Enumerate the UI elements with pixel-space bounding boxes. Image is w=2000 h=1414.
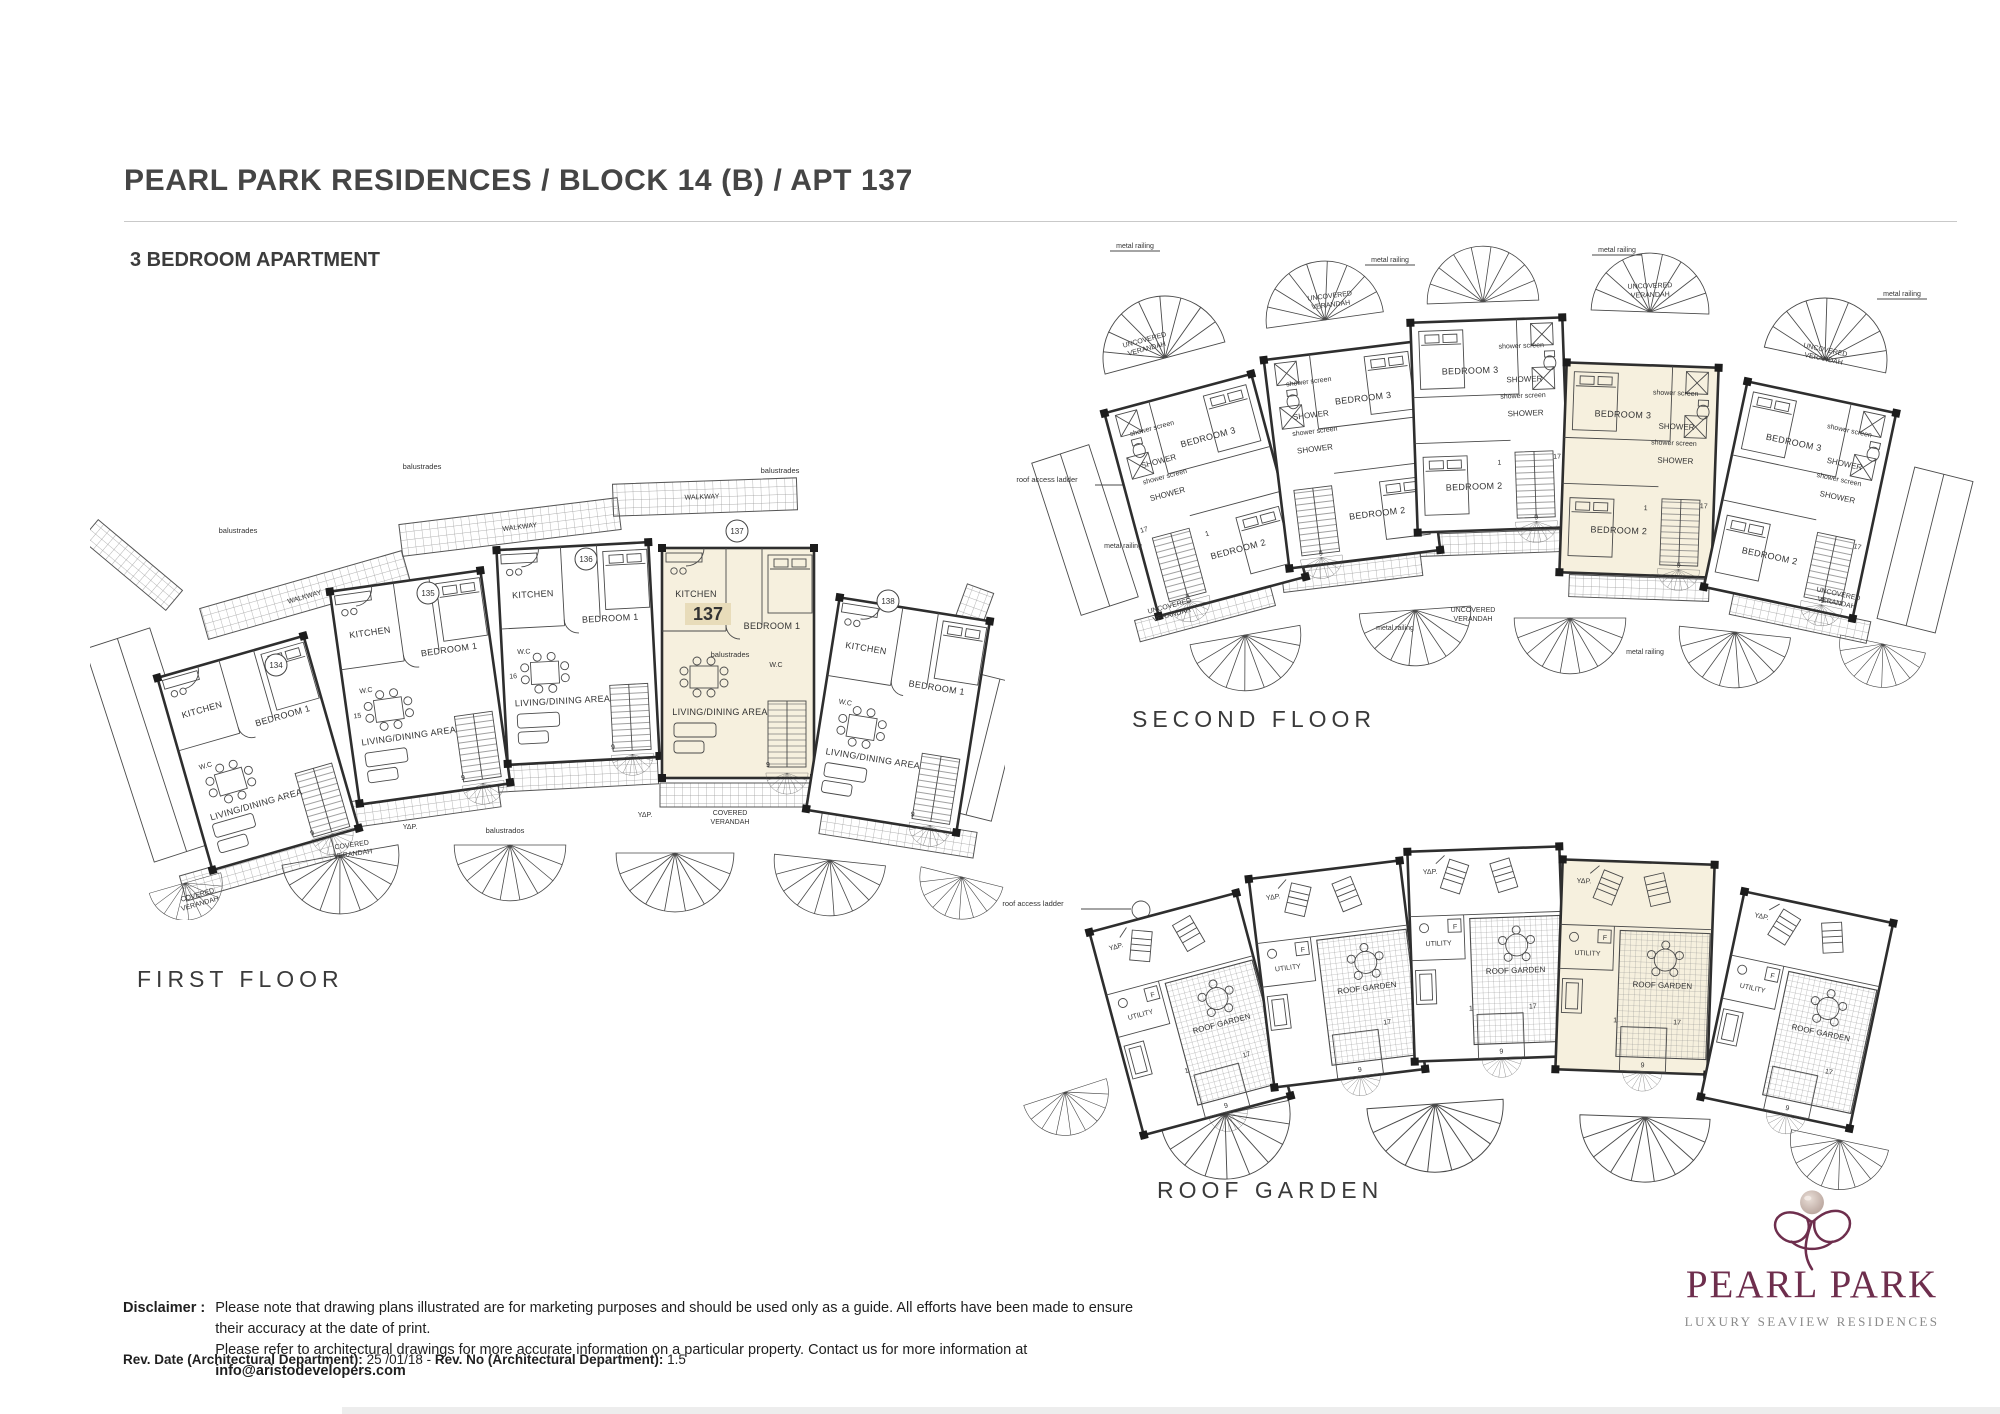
ydp-label: ΥΔΡ. — [1577, 878, 1592, 886]
uncovered-verandah-label: UNCOVERED — [1627, 282, 1672, 291]
ydp-label: ΥΔΡ. — [1423, 869, 1438, 877]
disclaimer: Disclaimer : Please note that drawing pl… — [123, 1298, 1143, 1382]
stair-number: 15 — [353, 712, 362, 720]
stair-number: 16 — [509, 673, 517, 680]
balustrados-label: balustrados — [486, 826, 525, 835]
roof-access-ladder-label: roof access ladder — [1002, 899, 1064, 908]
metal-railing-label: metal railing — [1371, 257, 1409, 264]
unit-circle-134: 134 — [269, 661, 283, 670]
unit-second-e: BEDROOM 3 shower screen SHOWER shower sc… — [1697, 377, 1901, 633]
stair-number: 17 — [1673, 1019, 1681, 1026]
stair-number: 17 — [1529, 1003, 1537, 1010]
ydp-label: ΥΔΡ. — [638, 812, 653, 819]
room-label-bedroom2: BEDROOM 2 — [1446, 481, 1503, 493]
unit-number-badge-text: 137 — [693, 604, 723, 624]
stair-number: 9 — [1499, 1048, 1503, 1055]
stair-number: 9 — [1640, 1062, 1644, 1069]
unit-136: KITCHEN BEDROOM 1 W.C LIVING/DINING AREA… — [492, 538, 664, 782]
first-floor-caption: FIRST FLOOR — [137, 966, 344, 993]
stair-number: 1 — [1644, 505, 1648, 512]
roof-access-ladder-label: roof access ladder — [1016, 475, 1078, 484]
stair-symbol — [1294, 486, 1340, 556]
unit-roof-c: ΥΔΡ. F UTILITY ROOF GARDEN 17 1 9 — [1403, 842, 1571, 1080]
first-floor-plan: KITCHEN BEDROOM 1 W.C LIVING/DINING AREA… — [90, 415, 1005, 920]
room-label-bedroom2: BEDROOM 2 — [1590, 524, 1647, 536]
unit-circle-136: 136 — [579, 555, 593, 564]
shower-label: SHOWER — [1506, 374, 1543, 384]
title-divider — [124, 221, 1957, 222]
metal-railing-label: metal railing — [1598, 247, 1636, 254]
balustrades-label: balustrades — [219, 526, 258, 535]
floorplan-sheet: PEARL PARK RESIDENCES / BLOCK 14 (B) / A… — [0, 0, 2000, 1414]
stair-symbol — [1660, 499, 1700, 566]
stair-number: 9 — [611, 744, 615, 751]
unit-roof-e: ΥΔΡ. F UTILITY ROOF GARDEN 17 9 — [1693, 887, 1898, 1148]
stair-symbol — [768, 701, 806, 767]
stair-number: 17 — [1700, 503, 1708, 510]
room-label-wc: W.C — [517, 648, 531, 656]
metal-railing-label: metal railing — [1104, 543, 1142, 550]
utility-label: UTILITY — [1574, 950, 1601, 958]
rev-no-value: 1.5 — [663, 1352, 686, 1367]
stair-symbol — [610, 683, 651, 751]
swirl-ribbon — [1775, 1211, 1850, 1269]
covered-verandah-label: COVERED — [713, 810, 748, 817]
rev-date-label: Rev. Date (Architectural Department): — [123, 1352, 363, 1367]
verandah-fan — [616, 853, 734, 912]
rev-no-label: Rev. No (Architectural Department): — [435, 1352, 664, 1367]
shower-label: SHOWER — [1507, 408, 1544, 418]
metal-railing-label: metal railing — [1883, 291, 1921, 298]
shower-label: SHOWER — [1657, 456, 1694, 466]
metal-railing-label: metal railing — [1376, 625, 1414, 632]
balustrades-label: balustrades — [761, 466, 800, 475]
uncovered-verandah-label: UNCOVERED — [1451, 607, 1496, 614]
logo-tagline: LUXURY SEAVIEW RESIDENCES — [1660, 1314, 1964, 1330]
disclaimer-text: Please note that drawing plans illustrat… — [215, 1298, 1143, 1382]
uncovered-verandah-label: VERANDAH — [1631, 291, 1670, 299]
stair-number: 9 — [766, 762, 770, 769]
stair-number: 9 — [1534, 514, 1538, 521]
page-title: PEARL PARK RESIDENCES / BLOCK 14 (B) / A… — [124, 164, 913, 198]
unit-137-highlighted: KITCHEN 137 BEDROOM 1 W.C LIVING/DINING … — [658, 544, 818, 794]
verandah-fan — [454, 845, 566, 901]
metal-railing-label: metal railing — [1626, 649, 1664, 656]
verandah-fan — [769, 854, 886, 920]
balustrades-label: balustrades — [711, 650, 750, 659]
room-label-kitchen: KITCHEN — [675, 589, 717, 599]
room-label-living: LIVING/DINING AREA — [672, 707, 767, 717]
first-floor-drawing: KITCHEN BEDROOM 1 W.C LIVING/DINING AREA… — [90, 415, 1005, 920]
roof-garden-caption: ROOF GARDEN — [1157, 1177, 1383, 1204]
unit-135: KITCHEN BEDROOM 1 W.C LIVING/DINING AREA… — [325, 566, 516, 822]
ydp-label: ΥΔΡ. — [403, 824, 418, 831]
bottom-strip — [342, 1407, 2000, 1414]
second-floor-plan: roof access ladder BEDROOM 3 shower scre… — [995, 240, 1995, 705]
logo-name: PEARL PARK — [1660, 1262, 1964, 1307]
f-label: F — [1603, 935, 1608, 942]
revision-line: Rev. Date (Architectural Department): 25… — [123, 1352, 686, 1367]
stair-number: 17 — [1553, 454, 1561, 461]
second-floor-drawing: roof access ladder BEDROOM 3 shower scre… — [995, 240, 1995, 705]
metal-railing-label: metal railing — [1116, 243, 1154, 250]
room-label-bedroom3: BEDROOM 3 — [1442, 365, 1499, 377]
stair-number: 1 — [1497, 460, 1501, 467]
stair-number: 17 — [1383, 1019, 1392, 1027]
stair-number: 1 — [1469, 1006, 1473, 1013]
disclaimer-line1: Please note that drawing plans illustrat… — [215, 1300, 1133, 1337]
uncovered-verandah-label: VERANDAH — [1454, 616, 1493, 623]
unit-circle-135: 135 — [421, 589, 435, 598]
roof-garden-drawing: roof access ladder ΥΔΡ. F UTILITY ROOF G… — [985, 762, 1965, 1192]
balustrades-label: balustrades — [403, 462, 442, 471]
unit-second-c: BEDROOM 3 shower screen SHOWER shower sc… — [1406, 313, 1574, 547]
stair-wing-right — [1877, 467, 1973, 633]
unit-roof-b: ΥΔΡ. F UTILITY ROOF GARDEN 17 9 — [1244, 856, 1431, 1107]
disclaimer-label: Disclaimer : — [123, 1298, 205, 1382]
room-label-bedroom1: BEDROOM 1 — [744, 621, 801, 631]
covered-verandah-label: VERANDAH — [711, 819, 750, 826]
stair-number: 9 — [1677, 562, 1681, 569]
second-floor-caption: SECOND FLOOR — [1132, 706, 1376, 733]
rev-date-value: 25 /01/18 — [363, 1352, 423, 1367]
walkway-label: WALKWAY — [684, 493, 719, 501]
f-label: F — [1300, 947, 1305, 954]
stair-number: 1 — [1613, 1017, 1617, 1024]
rev-separator: - — [423, 1352, 435, 1367]
pearl-icon — [1800, 1190, 1824, 1214]
roof-access-ladder: roof access ladder — [1002, 899, 1150, 919]
utility-label: UTILITY — [1425, 940, 1452, 948]
stair-symbol — [1515, 451, 1555, 518]
unit-roof-137-highlighted: ΥΔΡ. F UTILITY ROOF GARDEN 17 1 9 — [1551, 855, 1719, 1093]
f-label: F — [1453, 924, 1458, 931]
roof-garden-plan: roof access ladder ΥΔΡ. F UTILITY ROOF G… — [985, 762, 1965, 1192]
shower-label: SHOWER — [1658, 422, 1695, 432]
unit-second-137-highlighted: BEDROOM 3 shower screen SHOWER shower sc… — [1555, 358, 1723, 592]
unit-circle-138: 138 — [881, 597, 895, 606]
room-label-bedroom3: BEDROOM 3 — [1594, 408, 1651, 420]
unit-circle-137: 137 — [730, 527, 744, 536]
pearl-park-logo: PEARL PARK LUXURY SEAVIEW RESIDENCES — [1660, 1188, 1964, 1330]
page-subtitle: 3 BEDROOM APARTMENT — [130, 249, 380, 272]
room-label-wc: W.C — [769, 662, 782, 669]
unit-138: KITCHEN BEDROOM 1 W.C LIVING/DINING AREA… — [799, 593, 994, 851]
